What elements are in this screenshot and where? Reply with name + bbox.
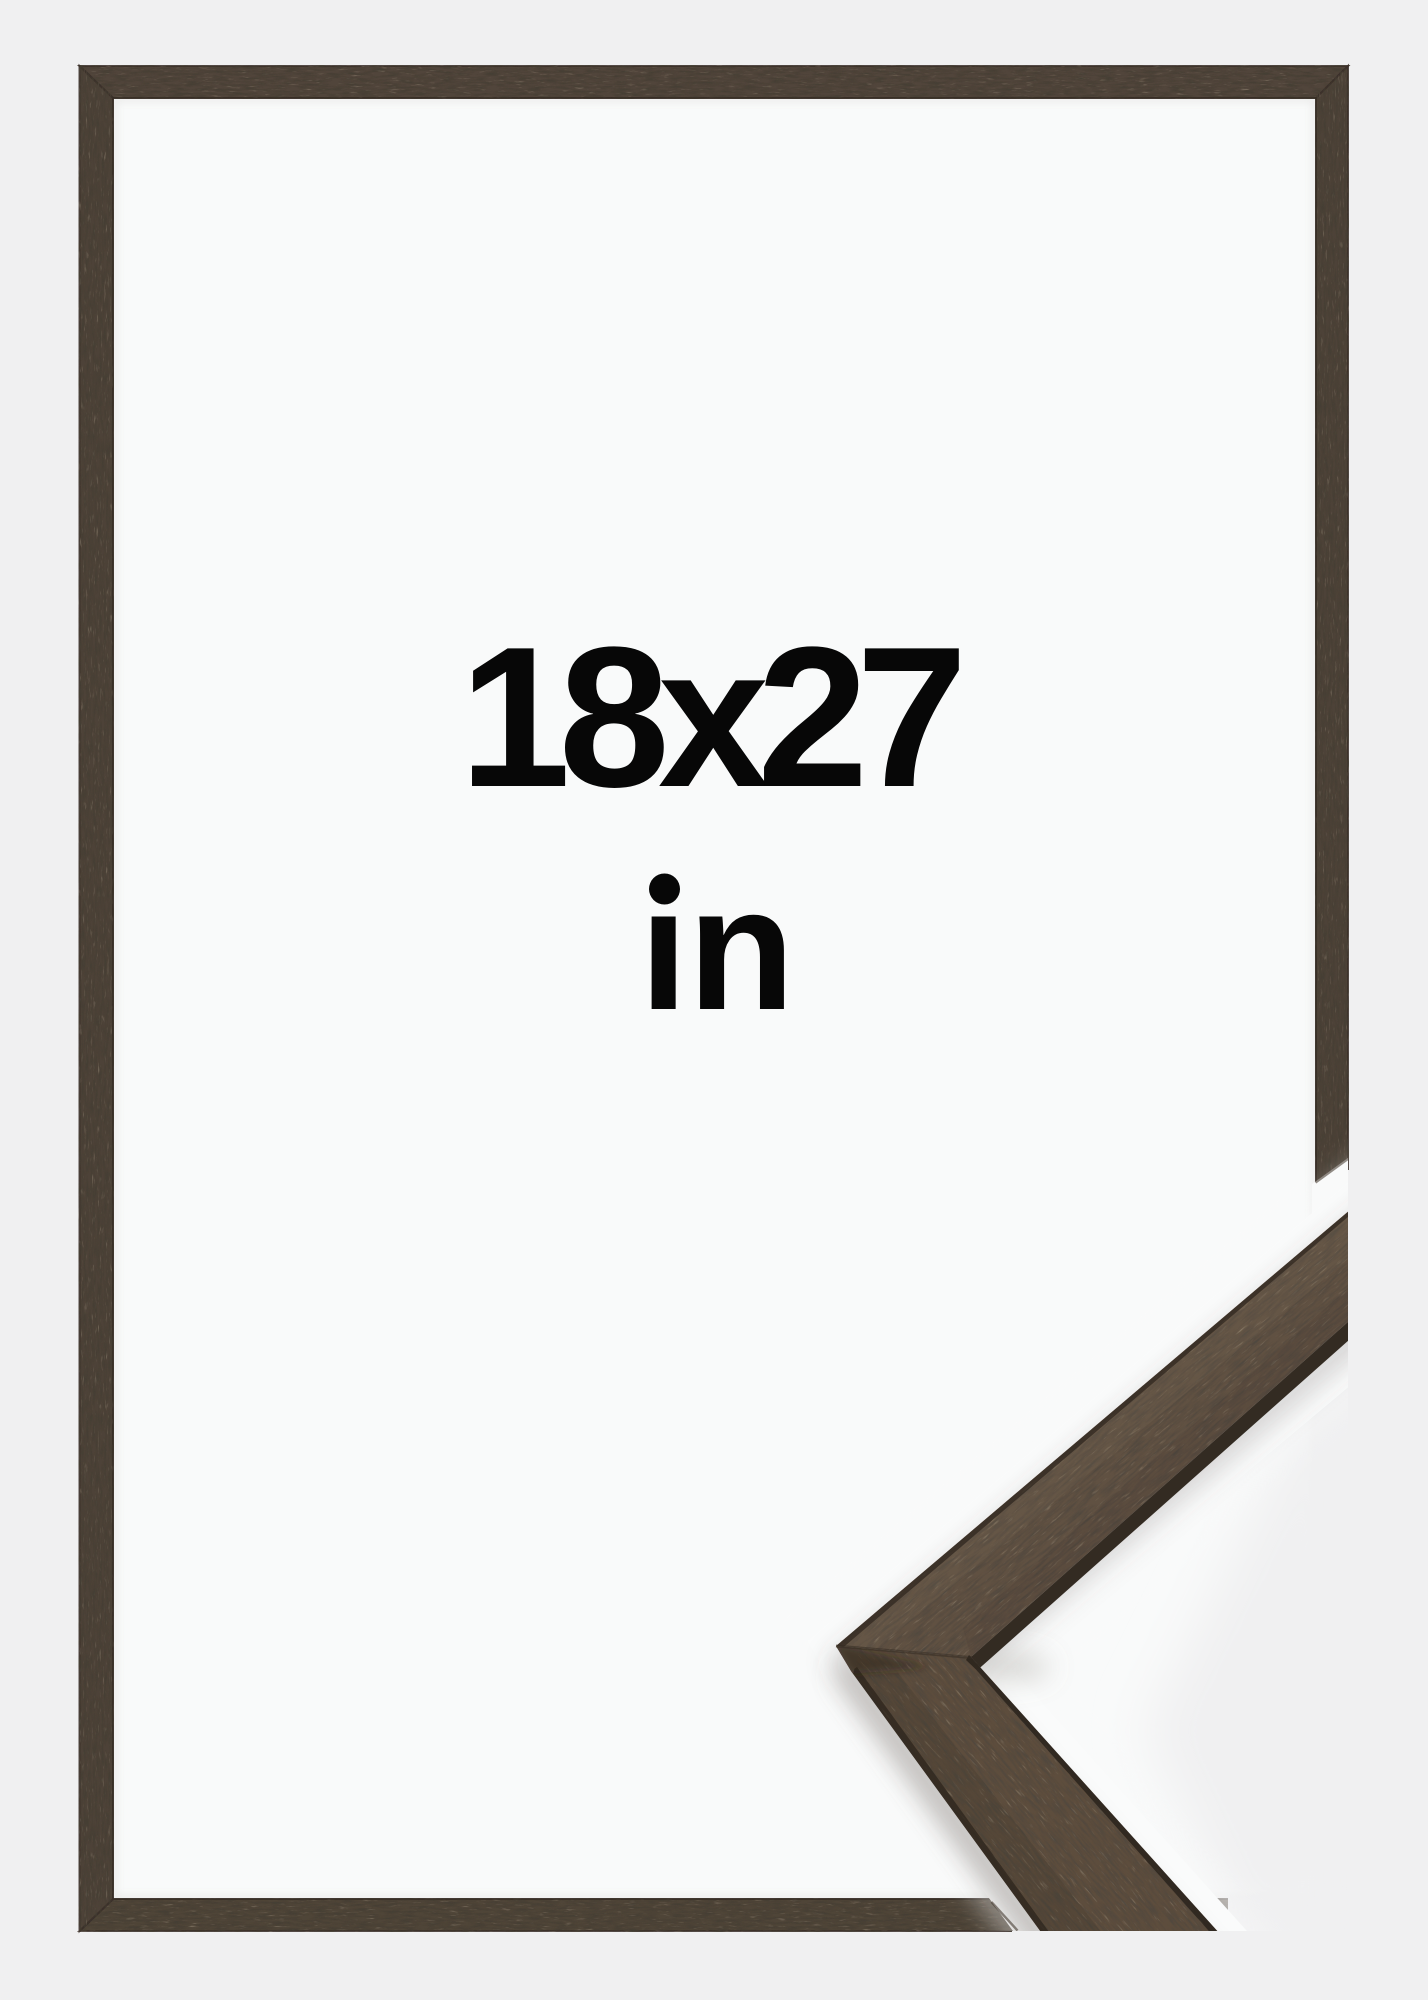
svg-text:18x27: 18x27 [459, 606, 959, 829]
